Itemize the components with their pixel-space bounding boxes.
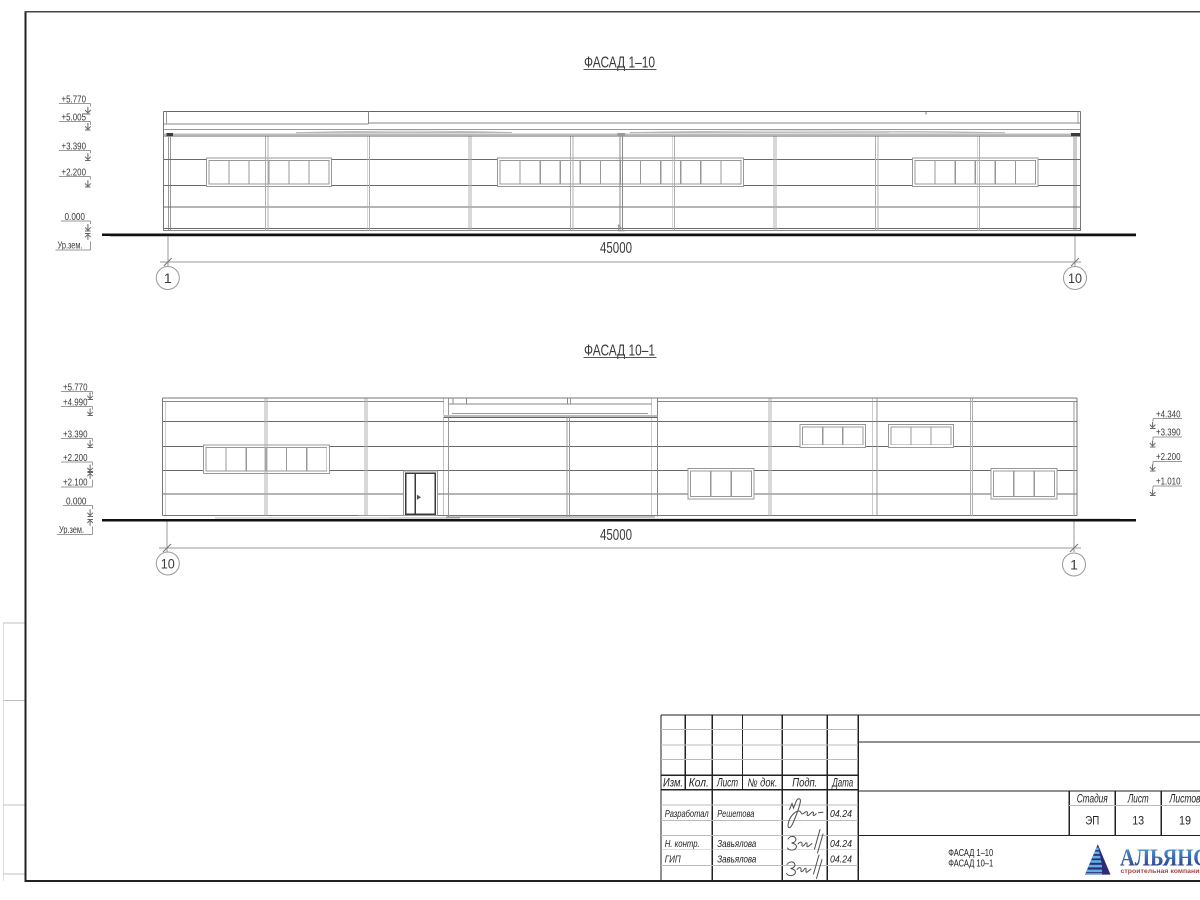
- svg-text:13: 13: [1132, 814, 1144, 828]
- svg-text:10: 10: [1068, 270, 1082, 286]
- svg-text:1: 1: [164, 270, 172, 286]
- svg-text:1: 1: [1070, 556, 1078, 572]
- svg-text:Дата: Дата: [831, 778, 853, 790]
- svg-text:04.24: 04.24: [830, 839, 852, 850]
- svg-text:Завьялова: Завьялова: [717, 838, 756, 850]
- svg-text:Разработал: Разработал: [665, 808, 709, 820]
- svg-text:Решетова: Решетова: [717, 808, 754, 820]
- svg-text:Лист: Лист: [1127, 794, 1149, 806]
- svg-text:10: 10: [161, 555, 175, 571]
- svg-text:Подп.: Подп.: [792, 778, 817, 790]
- svg-text:ФАСАД 10–1: ФАСАД 10–1: [948, 858, 993, 869]
- svg-text:№ док.: № док.: [748, 778, 778, 790]
- svg-text:Стадия: Стадия: [1077, 794, 1108, 806]
- svg-text:Листов: Листов: [1169, 794, 1200, 806]
- svg-text:Кол.: Кол.: [689, 778, 709, 790]
- svg-text:04.24: 04.24: [830, 809, 852, 820]
- svg-text:Завьялова: Завьялова: [717, 854, 756, 866]
- svg-text:45000: 45000: [600, 527, 632, 544]
- svg-text:ЭП: ЭП: [1085, 814, 1099, 828]
- svg-text:Лист: Лист: [716, 778, 738, 790]
- svg-text:Н. контр.: Н. контр.: [665, 838, 700, 850]
- svg-text:04.24: 04.24: [830, 855, 852, 866]
- svg-text:ГИП: ГИП: [665, 854, 681, 866]
- svg-text:Изм.: Изм.: [663, 778, 683, 790]
- svg-text:строительная компания: строительная компания: [1121, 868, 1200, 875]
- svg-text:19: 19: [1179, 814, 1191, 828]
- svg-text:45000: 45000: [600, 240, 632, 257]
